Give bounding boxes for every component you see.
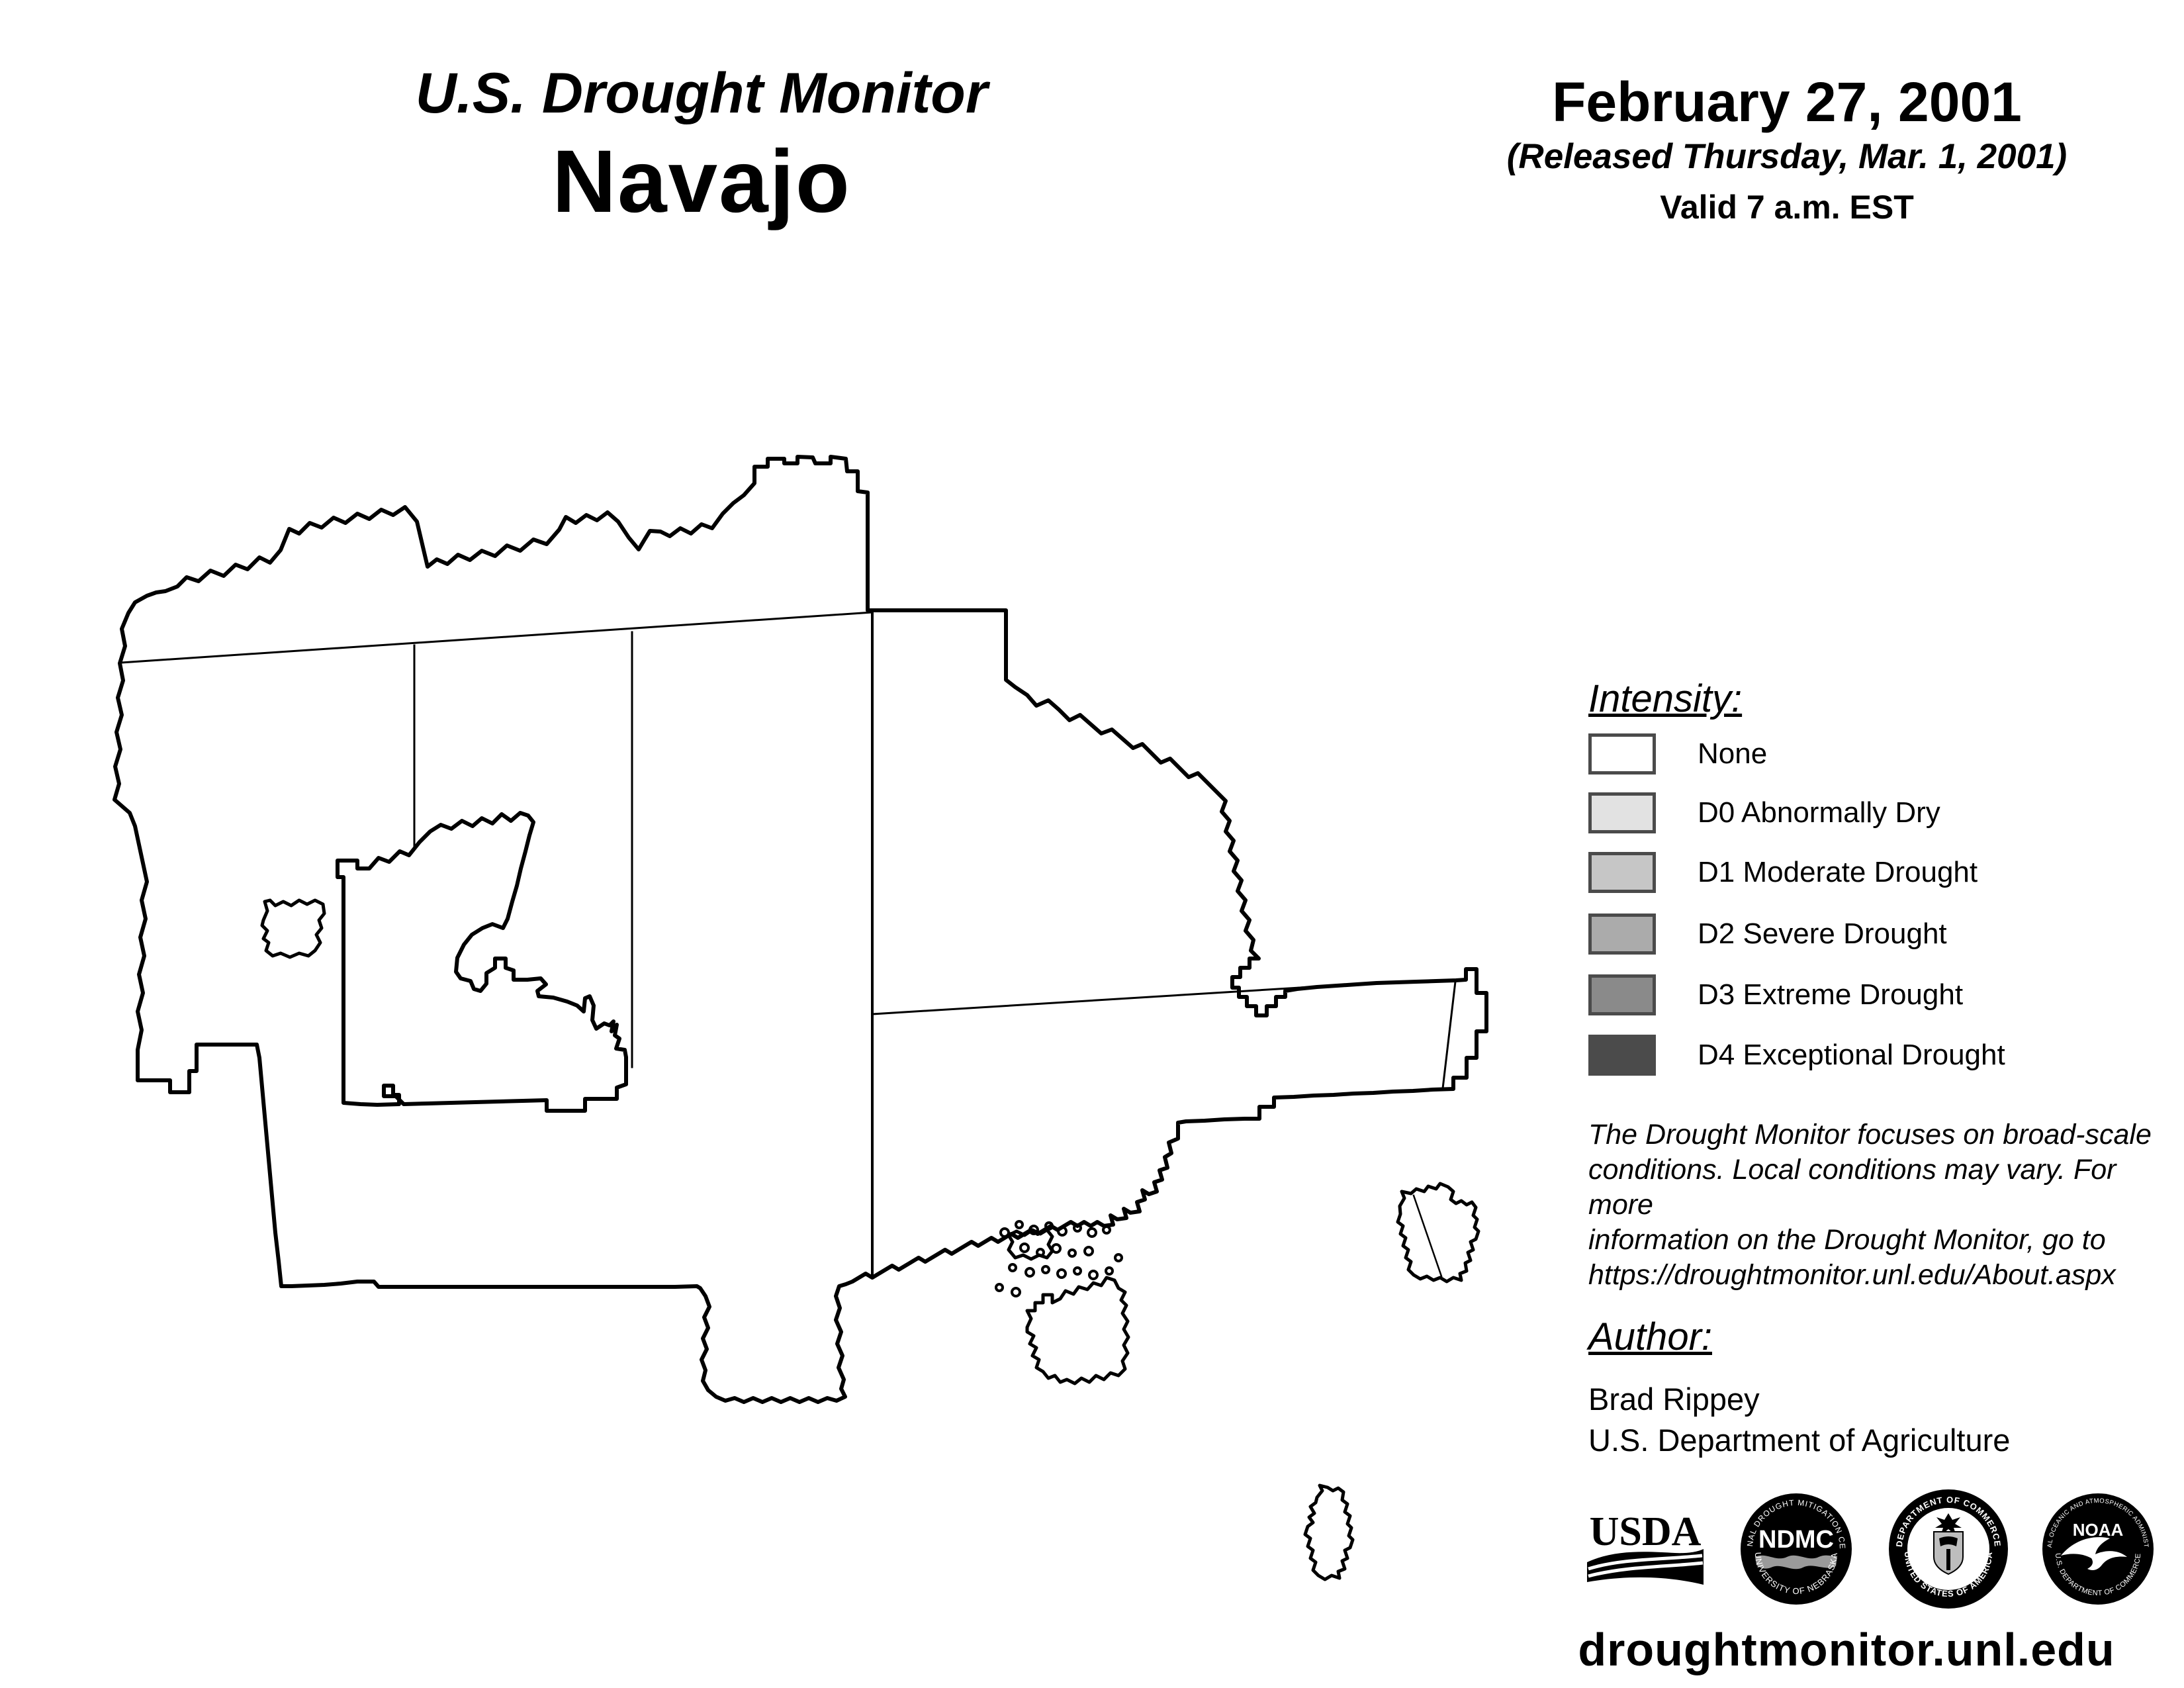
legend-label: None [1698,733,1767,774]
release-date: (Released Thursday, Mar. 1, 2001) [1456,136,2118,177]
alamo-internal-line [1414,1196,1441,1276]
legend-swatch-d0 [1588,792,1656,833]
noaa-logo: NATIONAL OCEANIC AND ATMOSPHERIC ADMINIS… [2041,1492,2155,1606]
agency-boundaries [121,612,1455,1278]
legend-swatch-d3 [1588,974,1656,1015]
disclaimer-text: The Drought Monitor focuses on broad-sca… [1588,1117,2184,1293]
author-heading: Author: [1588,1315,1712,1359]
legend-swatch-d4 [1588,1035,1656,1076]
commerce-logo: DEPARTMENT OF COMMERCE UNITED STATES OF … [1888,1488,2009,1610]
hopi-boundary [338,813,626,1111]
legend-label: D3 Extreme Drought [1698,974,1963,1015]
valid-time: Valid 7 a.m. EST [1456,188,2118,226]
page-title: U.S. Drought Monitor [199,61,1205,126]
noaa-center-text: NOAA [2073,1520,2124,1540]
drought-monitor-page: U.S. Drought Monitor Navajo February 27,… [0,0,2184,1688]
legend-label: D4 Exceptional Drought [1698,1035,2005,1076]
disclaimer-line: The Drought Monitor focuses on broad-sca… [1588,1117,2184,1152]
legend-label: D1 Moderate Drought [1698,852,1978,893]
author-organization: U.S. Department of Agriculture [1588,1422,2010,1458]
legend-swatch-d1 [1588,852,1656,893]
ndmc-wave [1755,1556,1837,1570]
usda-logo: USDA [1586,1511,1705,1589]
commerce-star-left: ★ [1907,1544,1916,1555]
legend-label: D0 Abnormally Dry [1698,792,1940,833]
tohajiilee-boundary [1305,1485,1353,1579]
ndmc-logo: NATIONAL DROUGHT MITIGATION CENTER NDMC … [1739,1492,1853,1606]
disclaimer-line: conditions. Local conditions may vary. F… [1588,1152,2184,1223]
author-name: Brad Rippey [1588,1381,1760,1417]
disclaimer-line: https://droughtmonitor.unl.edu/About.asp… [1588,1258,2184,1293]
usda-logo-text: USDA [1590,1511,1702,1554]
footer-url: droughtmonitor.unl.edu [1509,1623,2184,1676]
legend-swatch-d2 [1588,914,1656,955]
moenkopi-boundary [262,900,324,957]
legend-swatch-none [1588,733,1656,774]
map-date: February 27, 2001 [1456,70,2118,134]
region-title: Navajo [199,131,1205,232]
legend-heading: Intensity: [1588,677,1742,721]
commerce-star-right: ★ [1980,1544,1989,1555]
legend-label: D2 Severe Drought [1698,914,1947,955]
ndmc-center-text: NDMC [1758,1526,1834,1554]
ramah-boundary [1027,1278,1128,1383]
disclaimer-line: information on the Drought Monitor, go t… [1588,1223,2184,1258]
